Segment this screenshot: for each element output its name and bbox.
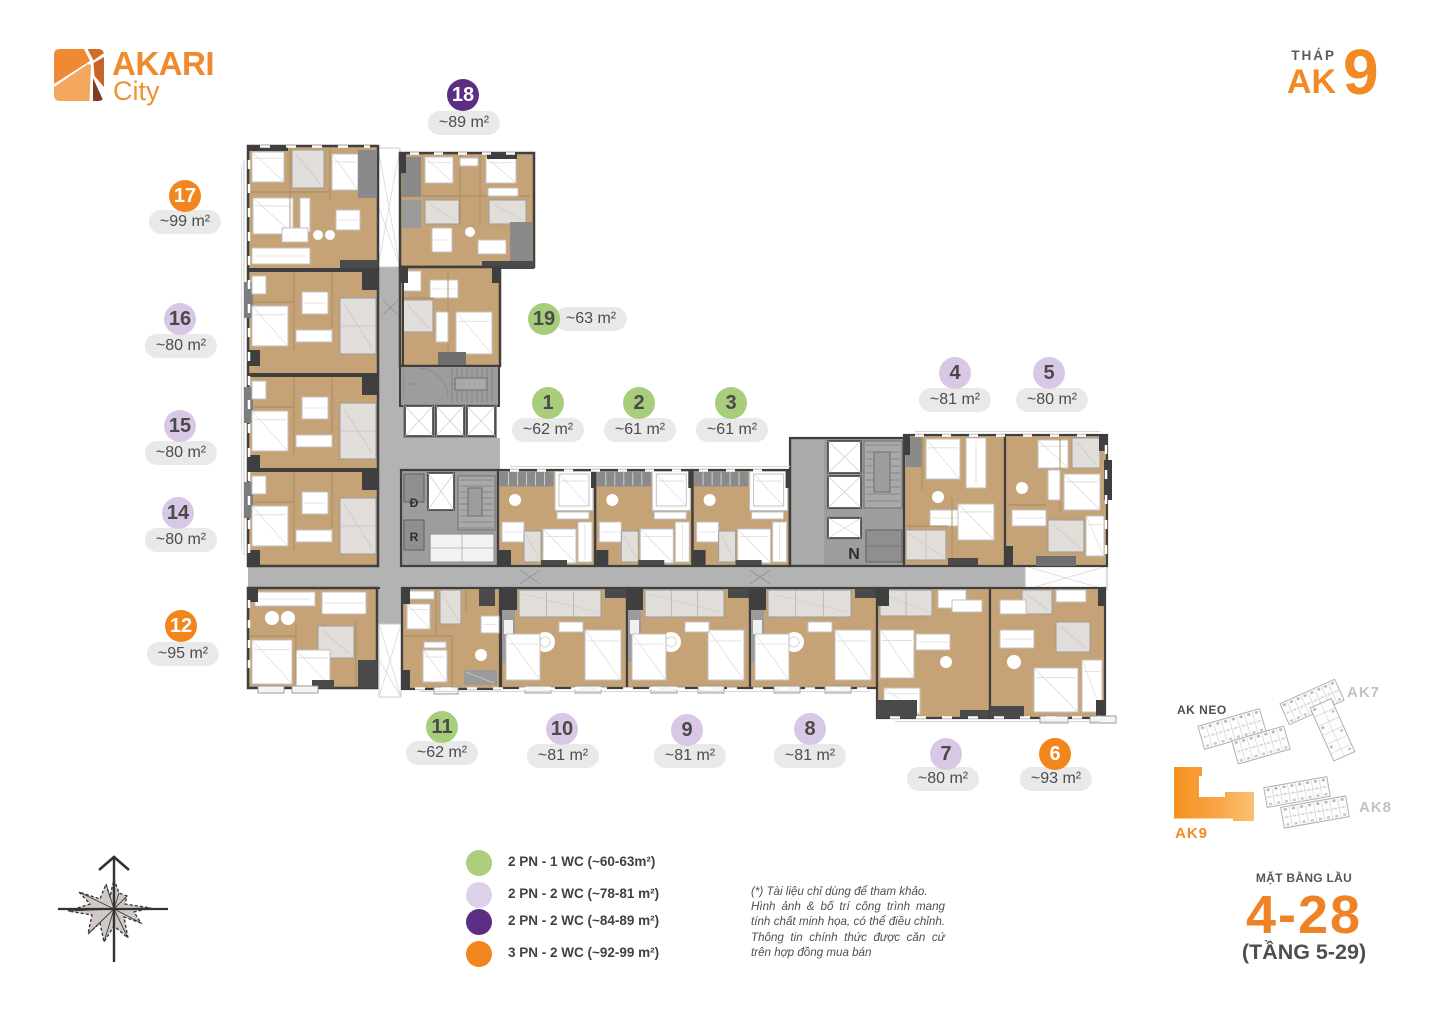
- svg-text:Đ: Đ: [410, 496, 419, 510]
- svg-text:N: N: [848, 546, 860, 563]
- svg-text:R: R: [410, 530, 419, 544]
